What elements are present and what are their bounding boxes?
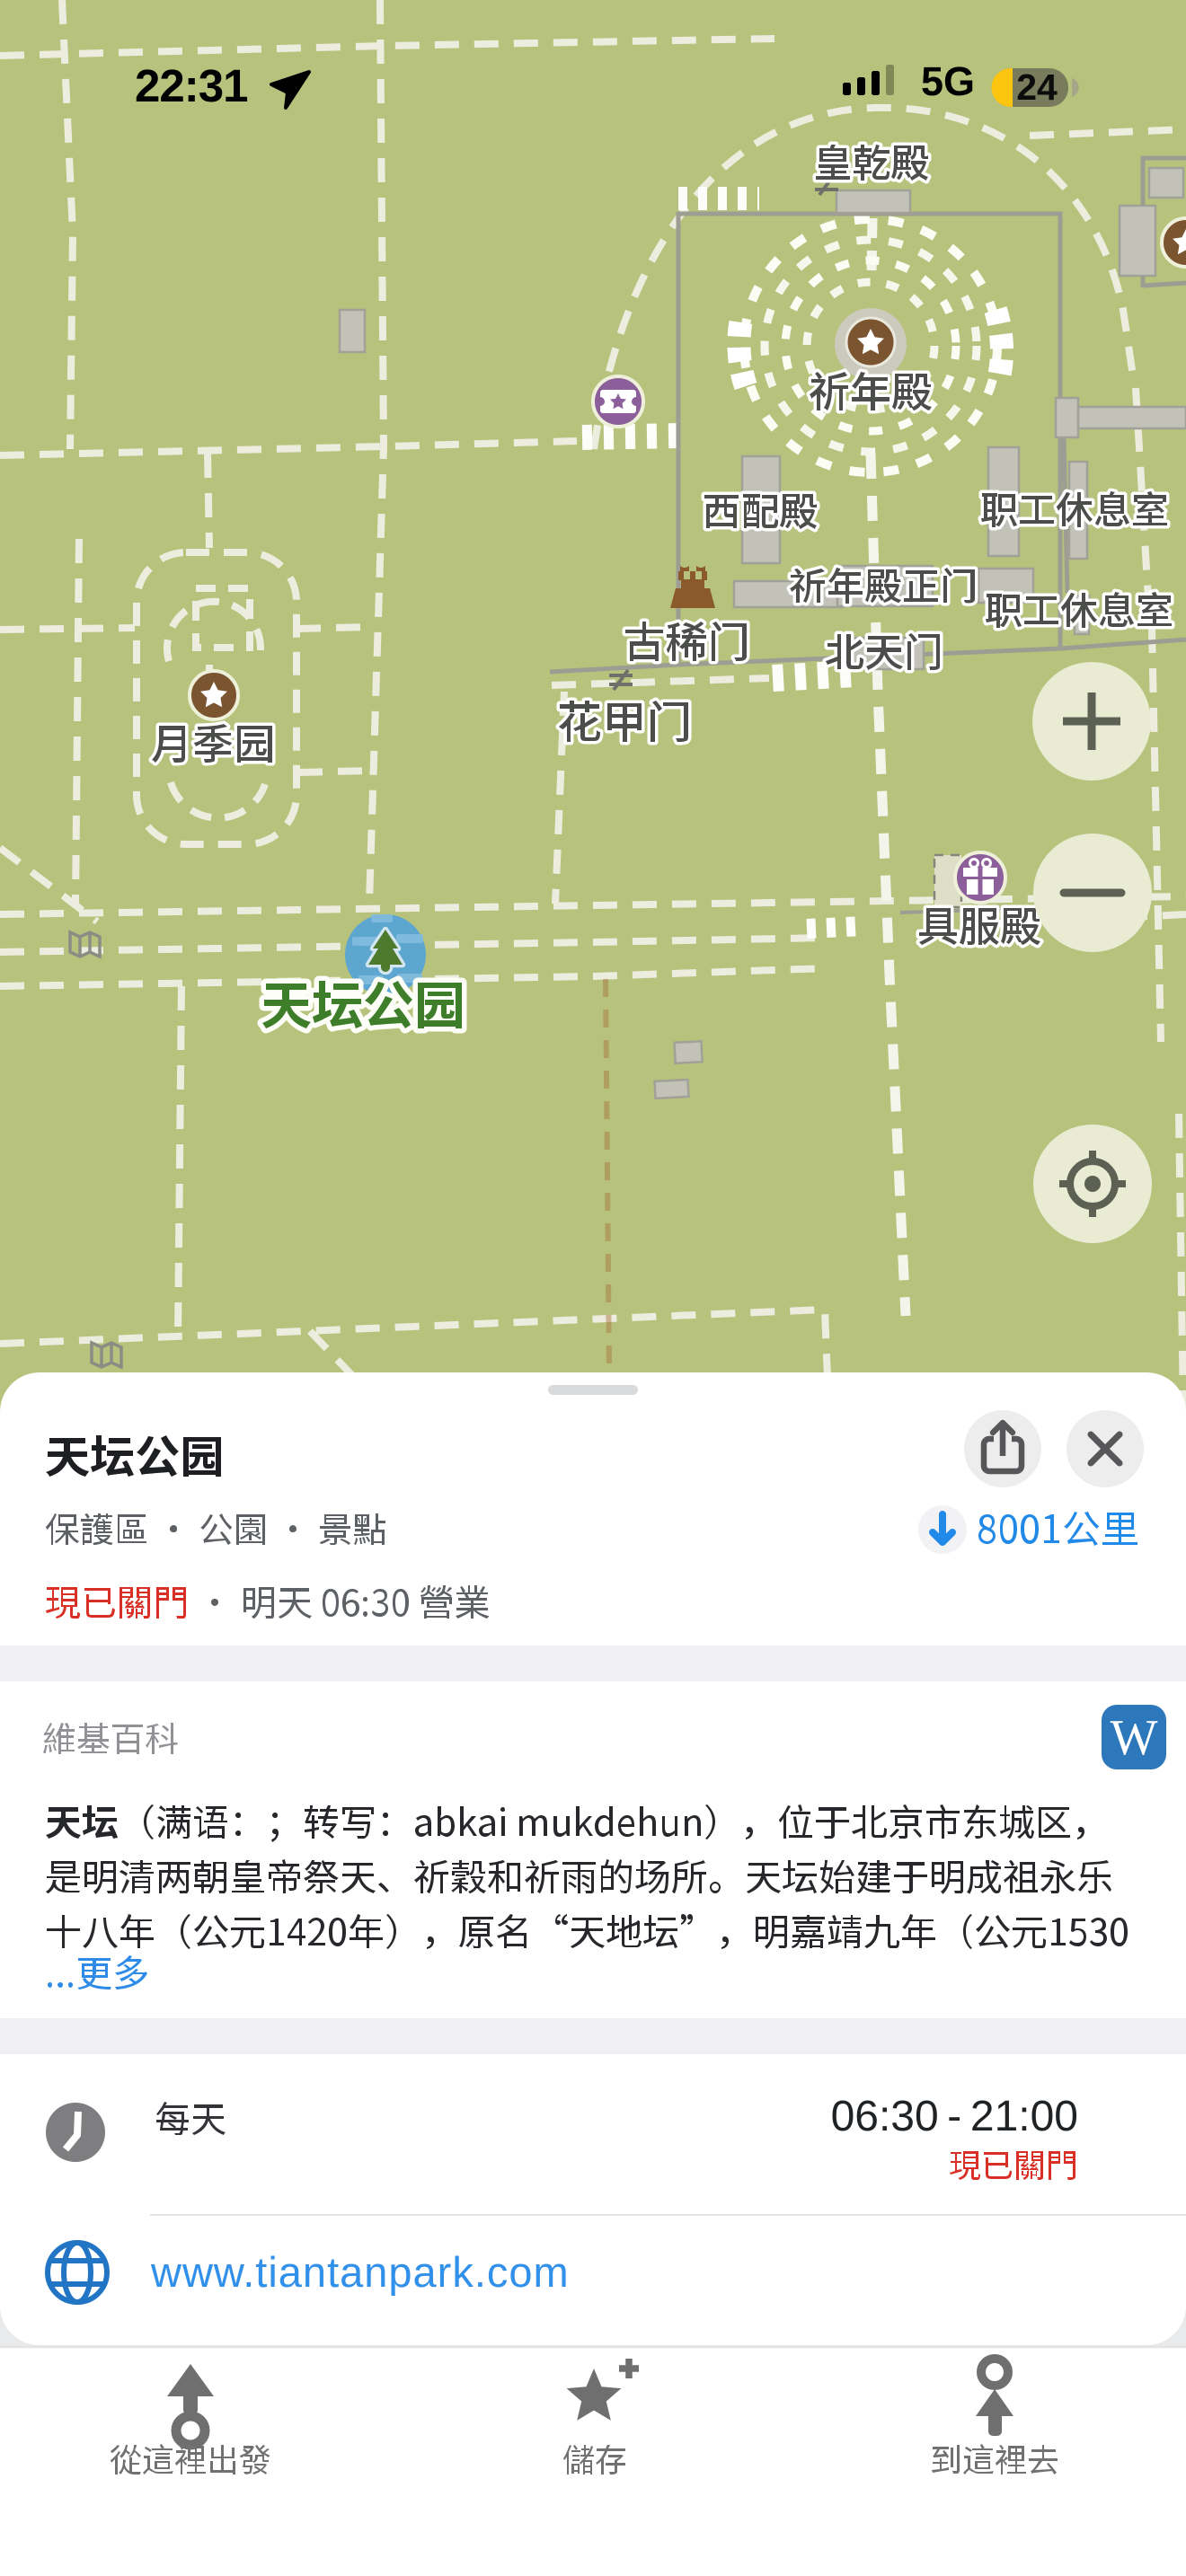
svg-text:22:31: 22:31 — [135, 60, 247, 111]
svg-text:06:30 - 21:00: 06:30 - 21:00 — [831, 2093, 1078, 2140]
svg-text:24: 24 — [1016, 66, 1058, 108]
svg-text:W: W — [1111, 1710, 1158, 1766]
svg-text:5G: 5G — [921, 58, 975, 104]
svg-text:www.tiantanpark.com: www.tiantanpark.com — [150, 2248, 570, 2296]
